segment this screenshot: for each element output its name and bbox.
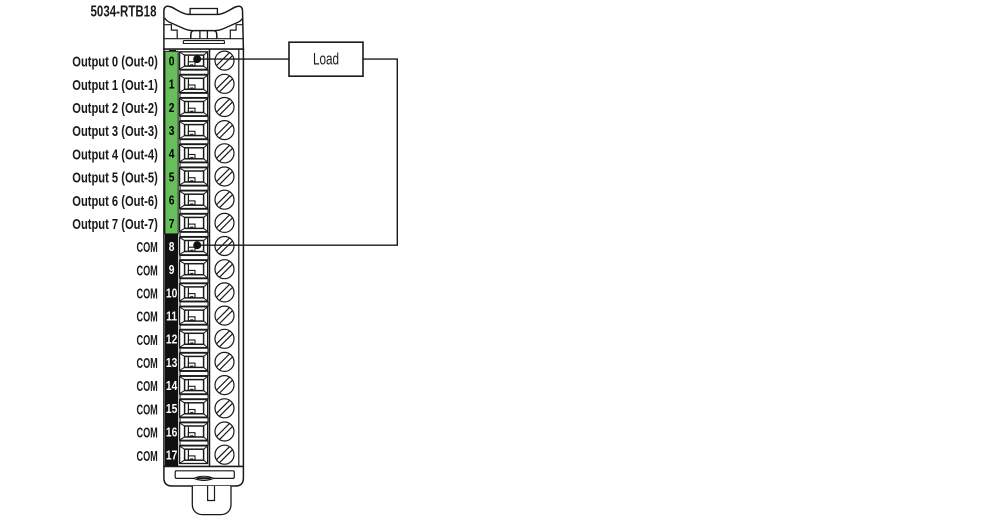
svg-text:4: 4 bbox=[169, 147, 175, 161]
svg-text:3: 3 bbox=[169, 124, 175, 138]
svg-text:COM: COM bbox=[136, 285, 157, 302]
svg-text:Output 3 (Out-3): Output 3 (Out-3) bbox=[72, 123, 158, 140]
svg-text:1: 1 bbox=[169, 78, 175, 92]
svg-text:2: 2 bbox=[169, 101, 175, 115]
svg-text:Output 6 (Out-6): Output 6 (Out-6) bbox=[72, 192, 158, 209]
svg-text:11: 11 bbox=[166, 309, 177, 323]
svg-text:14: 14 bbox=[166, 379, 178, 393]
svg-text:8: 8 bbox=[169, 240, 175, 254]
svg-text:COM: COM bbox=[136, 424, 157, 441]
svg-text:Output 2 (Out-2): Output 2 (Out-2) bbox=[72, 99, 158, 116]
svg-text:5034-RTB18: 5034-RTB18 bbox=[91, 2, 157, 20]
svg-text:0: 0 bbox=[169, 54, 175, 68]
svg-text:COM: COM bbox=[136, 401, 157, 418]
svg-text:17: 17 bbox=[166, 449, 177, 463]
svg-text:Output 5 (Out-5): Output 5 (Out-5) bbox=[72, 169, 158, 186]
svg-text:Load: Load bbox=[313, 51, 339, 70]
svg-text:13: 13 bbox=[166, 356, 178, 370]
svg-text:7: 7 bbox=[169, 217, 175, 231]
svg-text:10: 10 bbox=[166, 286, 178, 300]
svg-text:Output 0 (Out-0): Output 0 (Out-0) bbox=[72, 53, 158, 70]
svg-text:COM: COM bbox=[136, 308, 157, 325]
svg-text:COM: COM bbox=[136, 239, 157, 256]
svg-text:12: 12 bbox=[166, 333, 178, 347]
svg-text:9: 9 bbox=[169, 263, 175, 277]
svg-text:COM: COM bbox=[136, 448, 157, 465]
svg-text:COM: COM bbox=[136, 332, 157, 349]
svg-text:COM: COM bbox=[136, 262, 157, 279]
svg-text:COM: COM bbox=[136, 355, 157, 372]
svg-text:Output 4 (Out-4): Output 4 (Out-4) bbox=[72, 146, 158, 163]
svg-text:6: 6 bbox=[169, 194, 175, 208]
svg-text:Output 7 (Out-7): Output 7 (Out-7) bbox=[72, 215, 158, 232]
svg-text:Output 1 (Out-1): Output 1 (Out-1) bbox=[72, 76, 158, 93]
svg-text:5: 5 bbox=[169, 170, 175, 184]
svg-text:16: 16 bbox=[166, 425, 178, 439]
svg-text:15: 15 bbox=[166, 402, 178, 416]
svg-text:COM: COM bbox=[136, 378, 157, 395]
